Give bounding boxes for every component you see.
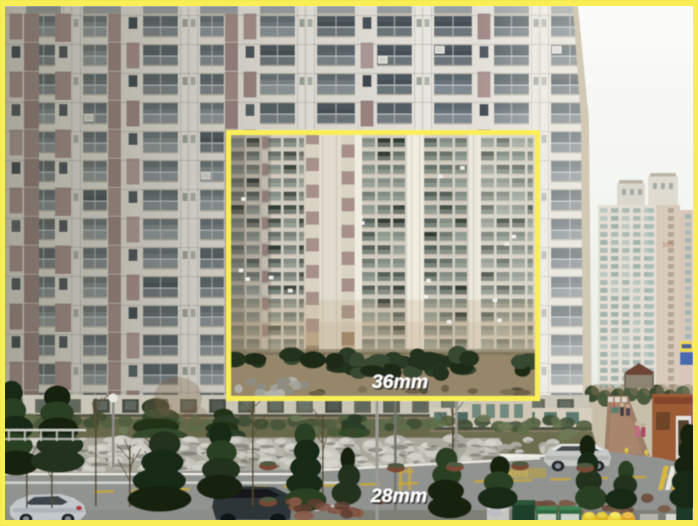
svg-text:36mm: 36mm — [372, 371, 428, 393]
svg-text:105: 105 — [662, 242, 674, 249]
svg-text:28mm: 28mm — [370, 485, 427, 507]
